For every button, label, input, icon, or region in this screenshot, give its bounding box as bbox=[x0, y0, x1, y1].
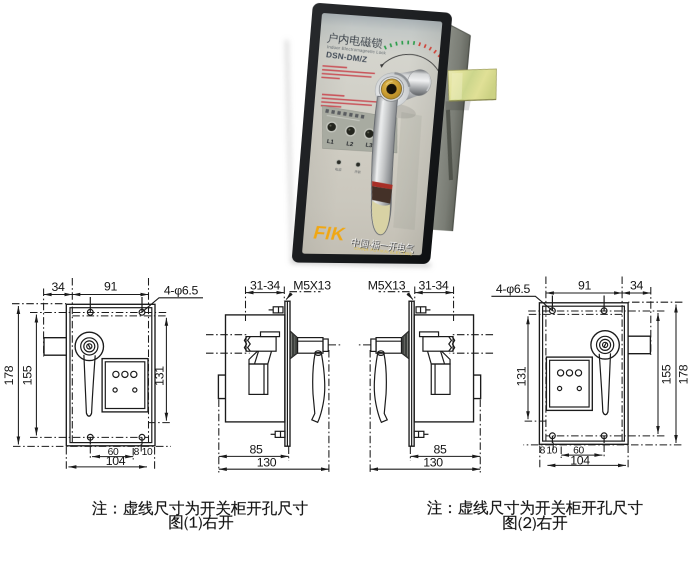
svg-text:131: 131 bbox=[152, 366, 166, 386]
svg-text:FIK: FIK bbox=[311, 223, 348, 245]
svg-text:155: 155 bbox=[20, 365, 34, 385]
svg-text:85: 85 bbox=[249, 442, 263, 456]
svg-text:178: 178 bbox=[2, 365, 16, 385]
svg-text:10: 10 bbox=[546, 445, 557, 456]
svg-text:8: 8 bbox=[134, 447, 140, 458]
svg-text:85: 85 bbox=[433, 442, 447, 456]
svg-text:130: 130 bbox=[423, 456, 443, 470]
svg-text:131: 131 bbox=[514, 366, 528, 386]
svg-text:10: 10 bbox=[142, 447, 153, 458]
svg-text:34: 34 bbox=[630, 279, 644, 293]
svg-text:91: 91 bbox=[104, 280, 118, 294]
svg-text:8: 8 bbox=[540, 445, 546, 456]
svg-text:104: 104 bbox=[570, 454, 590, 468]
svg-text:91: 91 bbox=[578, 279, 592, 293]
svg-text:130: 130 bbox=[257, 456, 277, 470]
svg-text:104: 104 bbox=[106, 454, 126, 468]
svg-text:34: 34 bbox=[51, 280, 65, 294]
svg-text:4-φ6.5: 4-φ6.5 bbox=[164, 284, 199, 298]
svg-text:178: 178 bbox=[676, 364, 690, 384]
svg-text:155: 155 bbox=[659, 364, 673, 384]
